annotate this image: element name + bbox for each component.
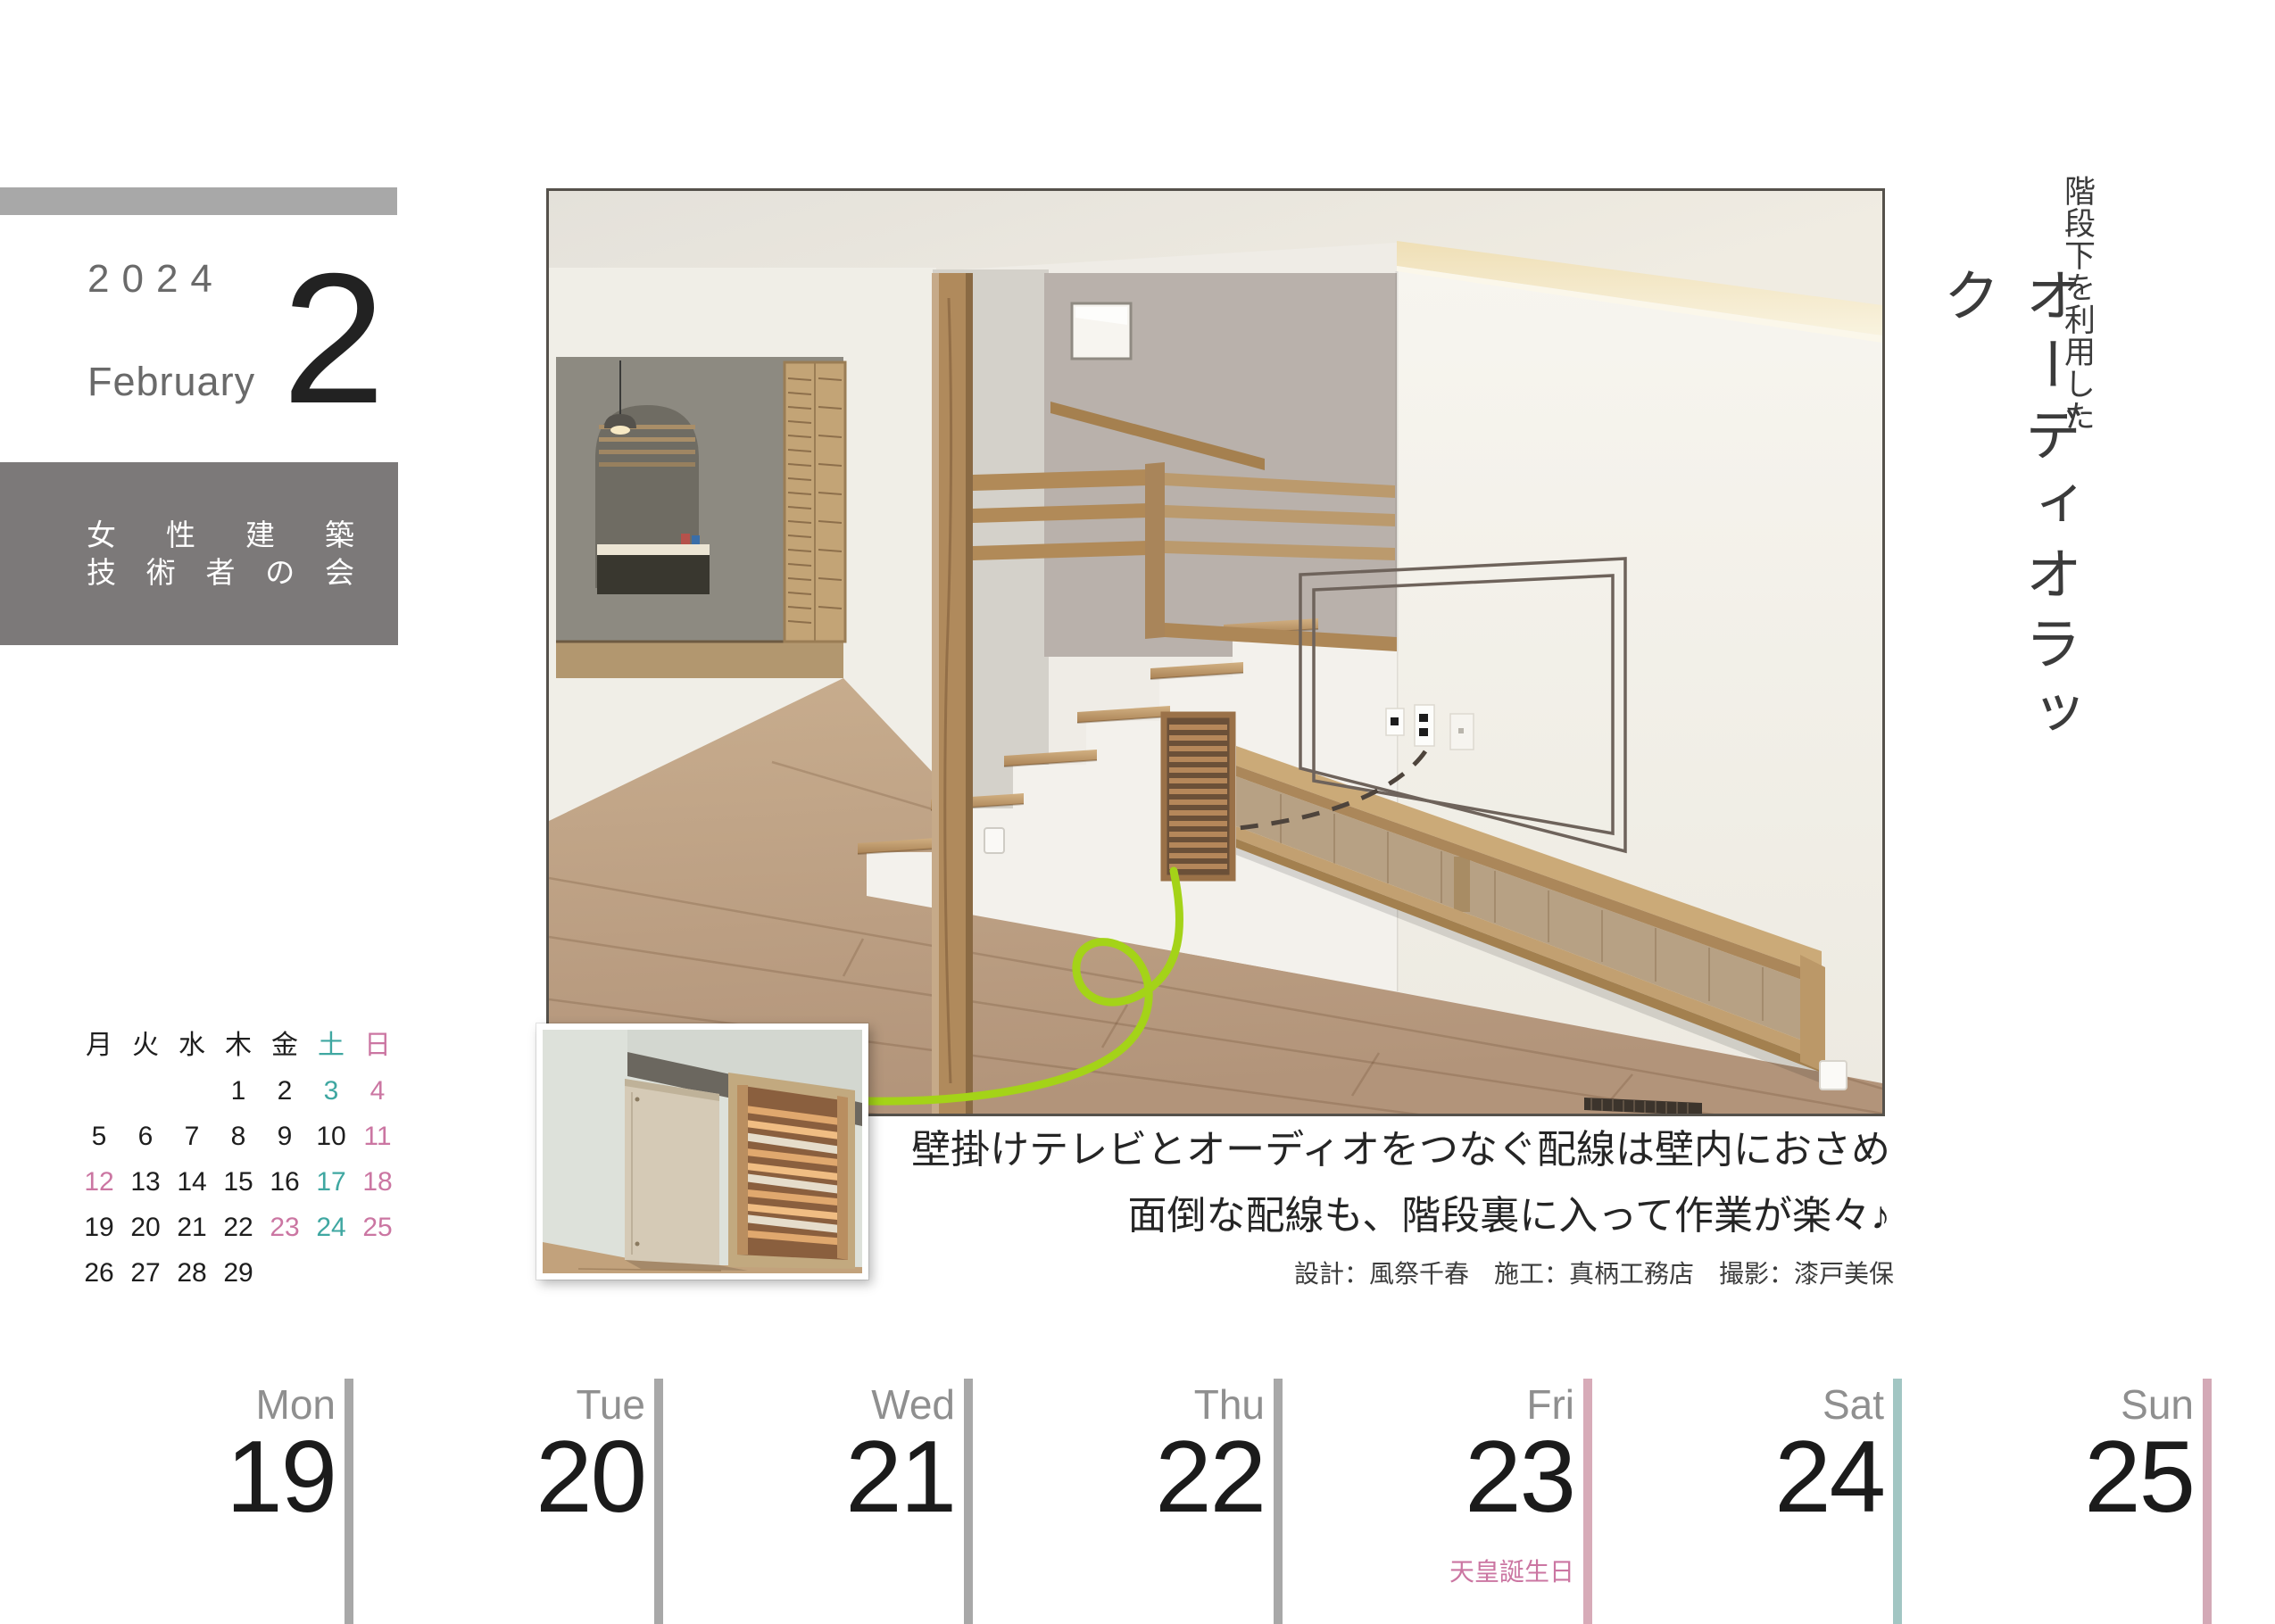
holiday-label <box>1616 1553 1884 1579</box>
organization-box: 女性建築 技術者の会 <box>0 462 398 645</box>
caption-line2: 面倒な配線も、階段裏に入って作業が楽々♪ <box>911 1183 1890 1249</box>
hallway-floor <box>556 642 843 678</box>
stairwell-window <box>1072 303 1131 359</box>
mini-calendar-day: 12 <box>76 1159 122 1205</box>
mini-calendar-day <box>262 1250 308 1296</box>
mini-calendar-weekday: 月 <box>76 1023 122 1068</box>
wall-outlet <box>1820 1061 1847 1090</box>
mini-calendar-day: 28 <box>169 1250 215 1296</box>
caption-line1: 壁掛けテレビとオーディオをつなぐ配線は壁内におさめ <box>911 1117 1890 1183</box>
bench-object <box>692 535 700 544</box>
mini-calendar-day: 5 <box>76 1114 122 1159</box>
mini-calendar-day: 13 <box>122 1159 169 1205</box>
weekstrip-day-fri: Fri 23 天皇誕生日 <box>1307 1381 1574 1588</box>
weekstrip-date: 24 <box>1616 1428 1884 1528</box>
mini-calendar-day <box>308 1250 354 1296</box>
holiday-label <box>68 1553 336 1579</box>
mini-calendar-day <box>169 1068 215 1114</box>
mini-calendar-day: 3 <box>308 1068 354 1114</box>
weekstrip-day-sat: Sat 24 <box>1616 1381 1884 1579</box>
month-name: February <box>87 359 255 405</box>
bench-end-panel <box>1800 955 1825 1073</box>
month-number: 2 <box>282 246 386 432</box>
photo-caption: 壁掛けテレビとオーディオをつなぐ配線は壁内におさめ 面倒な配線も、階段裏に入って… <box>911 1117 1890 1249</box>
mini-calendar-day: 29 <box>215 1250 262 1296</box>
weekstrip-day-sun: Sun 25 <box>1926 1381 2194 1579</box>
mini-calendar-weekday: 土 <box>308 1023 354 1068</box>
under-stair-rack-photo <box>543 1030 862 1273</box>
mini-calendar-day: 19 <box>76 1205 122 1250</box>
mini-calendar-day: 21 <box>169 1205 215 1250</box>
organization-name-line1: 女性建築 <box>87 517 354 554</box>
weekstrip-date: 23 <box>1307 1428 1574 1528</box>
mini-calendar-day: 1 <box>215 1068 262 1114</box>
mini-calendar-day <box>122 1068 169 1114</box>
header-accent-bar <box>0 187 397 215</box>
mini-calendar-day: 25 <box>354 1205 401 1250</box>
weekstrip-day-thu: Thu 22 <box>997 1381 1265 1579</box>
mini-calendar-weekday: 火 <box>122 1023 169 1068</box>
mini-calendar-day: 15 <box>215 1159 262 1205</box>
inset-photo <box>536 1023 868 1280</box>
bench-divider <box>1454 857 1470 912</box>
wood-post <box>932 273 973 1114</box>
under-stair-vent-door <box>1164 715 1233 878</box>
mini-calendar-day: 23 <box>262 1205 308 1250</box>
weekstrip-date: 25 <box>1926 1428 2194 1528</box>
bench-object <box>681 534 690 544</box>
open-door-panel <box>625 1079 719 1265</box>
photo-credits: 設計：風祭千春 施工：真柄工務店 撮影：漆戸美保 <box>1294 1255 1894 1290</box>
louver-closet-door <box>785 362 845 642</box>
pendant-glow <box>610 426 630 435</box>
weekstrip-bar <box>654 1379 663 1624</box>
mini-calendar-day: 4 <box>354 1068 401 1114</box>
weekstrip-date: 21 <box>687 1428 955 1528</box>
holiday-label <box>378 1553 645 1579</box>
holiday-label <box>997 1553 1265 1579</box>
weekstrip-bar <box>1893 1379 1902 1624</box>
mini-calendar-day: 9 <box>262 1114 308 1159</box>
bench-led-light <box>597 544 710 555</box>
weekstrip-bar <box>2203 1379 2212 1624</box>
organization-name-line2: 技術者の会 <box>87 554 354 592</box>
mini-calendar-day: 2 <box>262 1068 308 1114</box>
light-switch <box>984 828 1004 853</box>
feature-title-vertical: オーディオラック <box>1926 266 2090 819</box>
mini-calendar-day: 20 <box>122 1205 169 1250</box>
weekstrip-date: 19 <box>68 1428 336 1528</box>
rack-opening <box>728 1073 855 1269</box>
main-photo <box>546 188 1885 1116</box>
living-room-photo-illustration <box>549 191 1882 1114</box>
mini-calendar-day: 6 <box>122 1114 169 1159</box>
weekstrip-bar <box>1274 1379 1283 1624</box>
mini-calendar-weekday: 木 <box>215 1023 262 1068</box>
hallway <box>556 357 845 678</box>
mini-calendar-day: 27 <box>122 1250 169 1296</box>
mini-calendar: 月 火 水 木 金 土 日 1 2 3 4 5 6 7 8 9 10 11 12… <box>76 1023 401 1296</box>
mini-calendar-day <box>354 1250 401 1296</box>
entry-bench-shadow <box>597 555 710 594</box>
mini-calendar-day <box>76 1068 122 1114</box>
weekstrip-date: 22 <box>997 1428 1265 1528</box>
mini-calendar-day: 11 <box>354 1114 401 1159</box>
mini-calendar-day: 17 <box>308 1159 354 1205</box>
year-label: 2024 <box>87 257 225 302</box>
mini-calendar-day: 14 <box>169 1159 215 1205</box>
mini-calendar-day: 10 <box>308 1114 354 1159</box>
mini-calendar-day: 24 <box>308 1205 354 1250</box>
weekstrip-bar <box>964 1379 973 1624</box>
holiday-label <box>1926 1553 2194 1579</box>
mini-calendar-weekday: 日 <box>354 1023 401 1068</box>
weekstrip-bar <box>345 1379 353 1624</box>
mini-calendar-weekday: 金 <box>262 1023 308 1068</box>
holiday-label: 天皇誕生日 <box>1307 1553 1574 1588</box>
weekstrip-day-mon: Mon 19 <box>68 1381 336 1579</box>
weekstrip-date: 20 <box>378 1428 645 1528</box>
mini-calendar-day: 8 <box>215 1114 262 1159</box>
mini-calendar-day: 7 <box>169 1114 215 1159</box>
mini-calendar-day: 22 <box>215 1205 262 1250</box>
holiday-label <box>687 1553 955 1579</box>
weekstrip-day-wed: Wed 21 <box>687 1381 955 1579</box>
mini-calendar-day: 18 <box>354 1159 401 1205</box>
weekstrip-bar <box>1583 1379 1592 1624</box>
weekstrip-day-tue: Tue 20 <box>378 1381 645 1579</box>
calendar-page: { "page": {"year": "2024", "month_name":… <box>0 0 2275 1624</box>
mini-calendar-day: 26 <box>76 1250 122 1296</box>
mini-calendar-weekday: 水 <box>169 1023 215 1068</box>
mini-calendar-day: 16 <box>262 1159 308 1205</box>
